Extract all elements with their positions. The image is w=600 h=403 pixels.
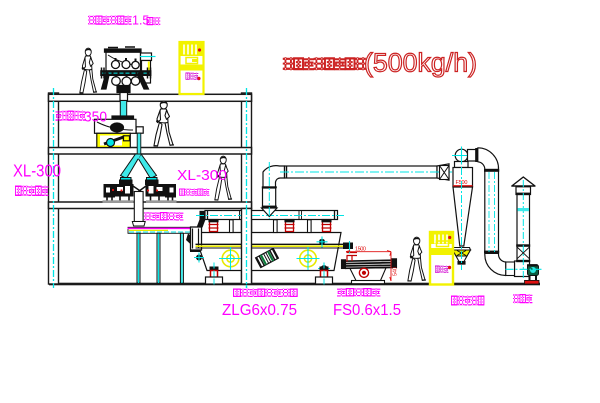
svg-text:FS0.6x1.5: FS0.6x1.5 <box>333 302 401 319</box>
svg-text:1500: 1500 <box>355 247 366 253</box>
svg-text:XL-300: XL-300 <box>177 167 227 184</box>
svg-text:350: 350 <box>84 109 107 126</box>
svg-text:XL-300: XL-300 <box>13 161 61 181</box>
svg-text:ZLG6x0.75: ZLG6x0.75 <box>222 302 297 319</box>
svg-text:(500kg/h): (500kg/h) <box>364 50 477 78</box>
svg-text:540: 540 <box>393 267 399 276</box>
